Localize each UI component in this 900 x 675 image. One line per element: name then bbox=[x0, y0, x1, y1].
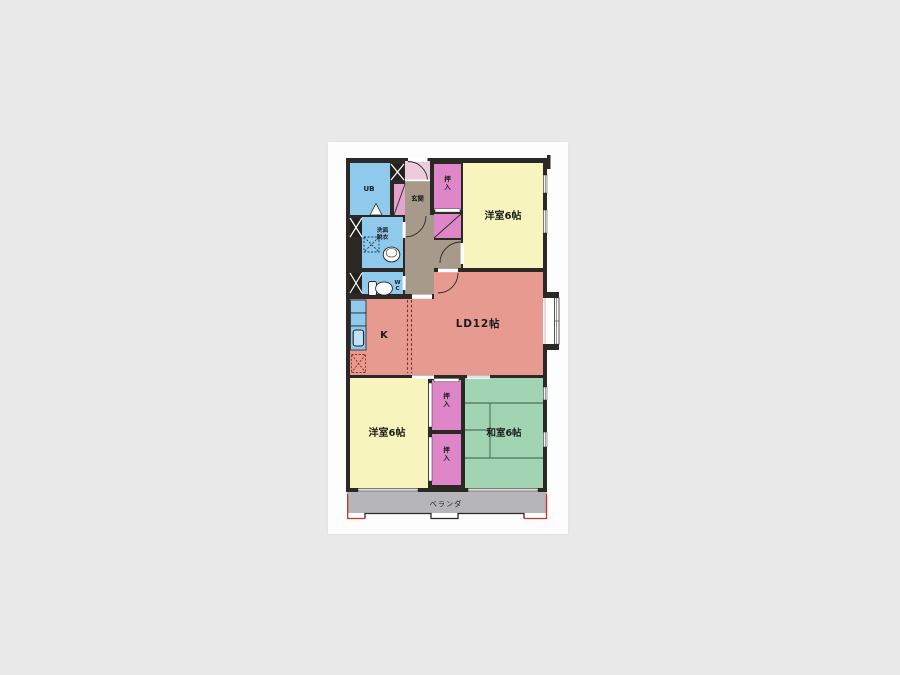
label-yoshitsu-south: 洋室6帖 bbox=[369, 426, 406, 439]
window-yoshitsu-north-2 bbox=[543, 210, 547, 233]
label-kitchen: K bbox=[380, 330, 389, 341]
corner-pillar-nub bbox=[547, 155, 551, 169]
label-genkan: 玄関 bbox=[411, 194, 424, 203]
label-living-dining: LD12帖 bbox=[456, 317, 501, 330]
label-unit-bath: UB bbox=[363, 185, 374, 193]
oshiire-upper-front bbox=[429, 383, 432, 427]
kitchen-counter bbox=[351, 300, 367, 350]
kitchen-sink bbox=[353, 330, 363, 346]
pillar-wc bbox=[350, 273, 362, 293]
sliding-door-balcony-east bbox=[468, 488, 538, 491]
floorplan-paper: UB 玄関 押入 洋室6帖 洗面 脱衣 WC K LD12帖 洋室6帖 押入 押… bbox=[328, 142, 568, 534]
pillar-entrance bbox=[391, 164, 404, 180]
oshiire-north-front bbox=[435, 209, 460, 213]
label-veranda: ベランダ bbox=[430, 500, 463, 509]
door-gap-kitchen bbox=[412, 294, 432, 299]
door-gap-senmen bbox=[403, 222, 406, 238]
label-oshiire-lower: 押入 bbox=[442, 445, 450, 462]
bay-window bbox=[543, 292, 559, 350]
oshiire-upper-top-front bbox=[434, 378, 459, 381]
door-gap-wc bbox=[403, 276, 406, 290]
label-yoshitsu-north: 洋室6帖 bbox=[485, 209, 522, 222]
label-senmen-line1: 洗面 bbox=[377, 226, 389, 234]
floorplan-drawing: UB 玄関 押入 洋室6帖 洗面 脱衣 WC K LD12帖 洋室6帖 押入 押… bbox=[328, 142, 568, 534]
window-yoshitsu-north-1 bbox=[543, 175, 547, 193]
toilet bbox=[369, 282, 393, 296]
sliding-door-balcony-west bbox=[358, 488, 418, 491]
oshiire-lower-front bbox=[429, 437, 432, 481]
screen-background: { "canvas": { "background": "#e9e9ea", "… bbox=[0, 0, 900, 675]
window-washitsu-2 bbox=[543, 432, 547, 447]
pillar-senmen bbox=[350, 218, 362, 237]
label-washitsu: 和室6帖 bbox=[485, 427, 522, 439]
wash-basin bbox=[383, 247, 400, 262]
door-gap-yoshitsu-south bbox=[412, 375, 434, 379]
label-oshiire-upper: 押入 bbox=[442, 391, 450, 408]
label-senmen-line2: 脱衣 bbox=[377, 233, 389, 241]
window-washitsu-1 bbox=[543, 387, 547, 400]
label-oshiire-north: 押入 bbox=[443, 174, 451, 191]
sliding-door-washitsu bbox=[467, 375, 490, 379]
